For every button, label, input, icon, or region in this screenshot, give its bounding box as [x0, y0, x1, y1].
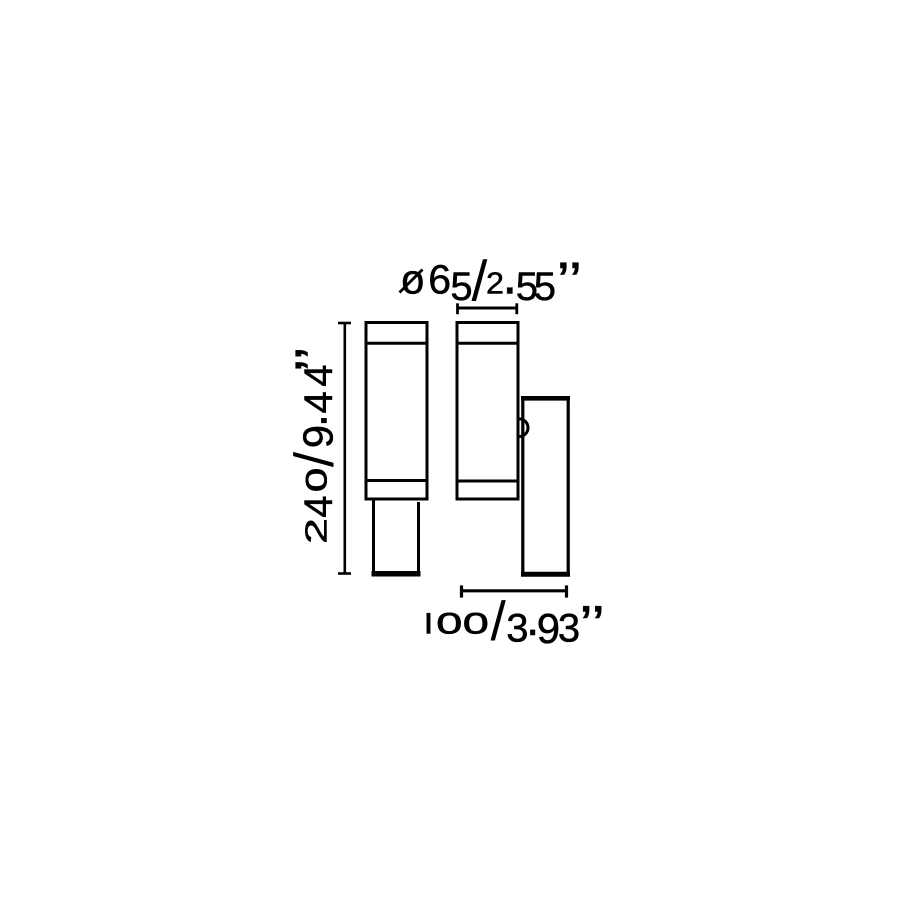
svg-text:ıoo/3.93’’: ıoo/3.93’’	[423, 590, 606, 652]
svg-text:24o/9.44’’: 24o/9.44’’	[283, 345, 345, 544]
svg-text:o65/2.55’’: o65/2.55’’	[401, 244, 583, 314]
